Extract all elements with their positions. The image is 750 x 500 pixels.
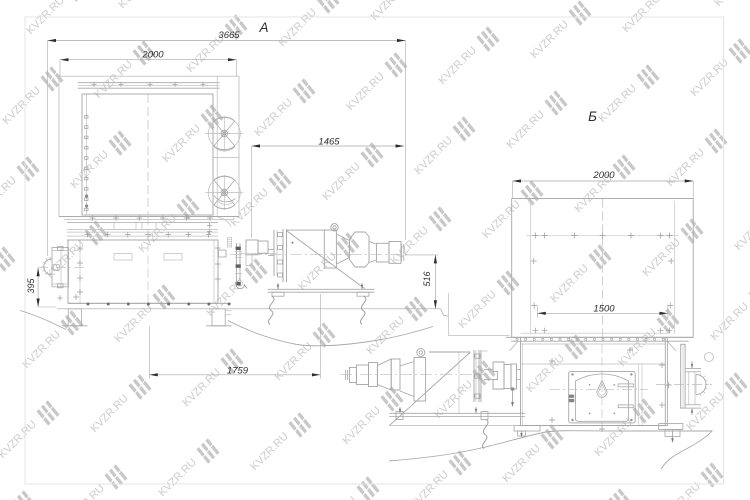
svg-text:2000: 2000 [592, 170, 615, 181]
svg-text:516: 516 [422, 271, 432, 286]
svg-text:1465: 1465 [318, 136, 340, 147]
svg-text:395: 395 [26, 278, 36, 294]
svg-text:2000: 2000 [141, 49, 164, 60]
svg-text:1500: 1500 [593, 303, 615, 314]
svg-text:Б: Б [588, 109, 597, 124]
svg-text:3665: 3665 [218, 30, 240, 41]
svg-text:A: A [258, 20, 268, 35]
svg-text:1759: 1759 [227, 365, 249, 376]
